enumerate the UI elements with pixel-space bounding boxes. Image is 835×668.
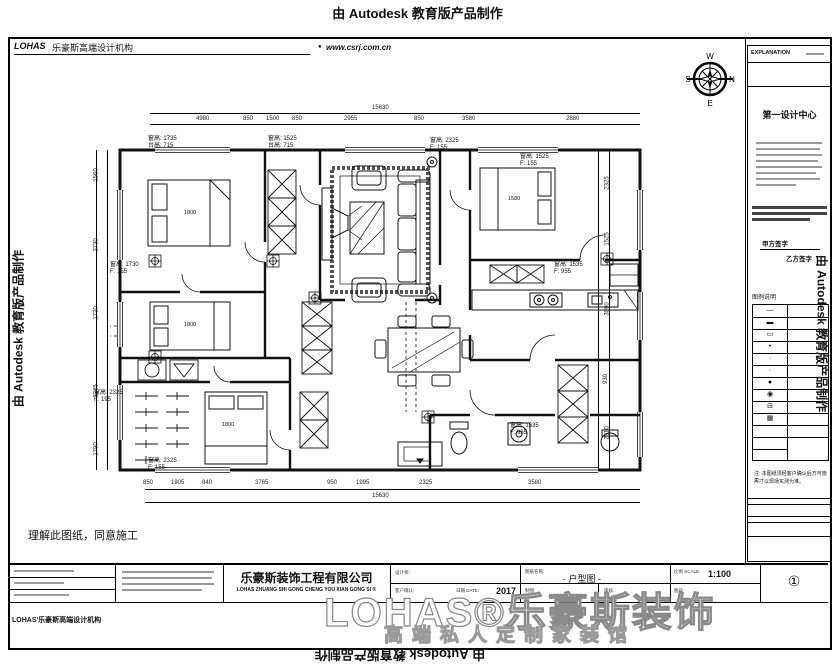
- compass-s: S: [685, 75, 690, 84]
- designer-label: 设计师:: [395, 570, 410, 576]
- panel-row-line: [748, 522, 831, 523]
- check-label: 审核:: [604, 588, 614, 594]
- closet-rails: [135, 392, 189, 464]
- bed-third: [205, 392, 267, 464]
- lohas-logo: LOHAS: [14, 41, 46, 51]
- window-label: 窗高: 1525 台高: 715: [268, 136, 297, 150]
- tb-smallprint: [122, 577, 212, 579]
- compass-w: W: [706, 52, 714, 61]
- sheet-number: ①: [760, 573, 828, 590]
- scale-value: 1:100: [708, 569, 731, 579]
- client-label: 客户确认:: [395, 588, 414, 594]
- paragraph-line: [756, 160, 818, 162]
- window-label: 窗高: 1535 F: 955: [510, 423, 539, 437]
- bold-statement-line: [752, 206, 827, 209]
- bathroom-ensuite: [138, 360, 198, 380]
- dim: 1790: [94, 442, 100, 455]
- floor-plan: [110, 130, 650, 495]
- dim-line-top-total: [150, 113, 640, 114]
- right-panel-divider: [745, 37, 746, 563]
- bed-size: 1580: [508, 196, 520, 202]
- paragraph-line: [756, 148, 820, 150]
- dim: 2880: [566, 116, 579, 122]
- panel-row-line: [748, 536, 831, 537]
- bottom-autodesk-banner: 由 Autodesk 教育版产品制作: [240, 646, 560, 665]
- window-label: 窗高: 2325 F: 155: [430, 138, 459, 152]
- legend-title: 图例说明: [752, 292, 776, 301]
- signature-label-a: 甲方签字: [762, 238, 788, 248]
- tb-subline: [390, 583, 520, 584]
- bed-size: 1800: [222, 422, 234, 428]
- north-compass: W N S E: [683, 50, 737, 108]
- dim: 3730: [94, 238, 100, 251]
- dim: 1560: [94, 168, 100, 181]
- tb-tiny-text: [14, 582, 64, 584]
- paragraph-line: [756, 172, 816, 174]
- tv-bench: [398, 442, 442, 466]
- living-room-set: [322, 157, 437, 303]
- paragraph-line: [756, 184, 796, 186]
- signature-line: [760, 249, 820, 250]
- wardrobes: [268, 170, 588, 448]
- bold-statement-line: [752, 218, 810, 221]
- dim: 850: [243, 116, 253, 122]
- paragraph-line: [756, 178, 820, 180]
- drawing-title: - 户型图 -: [563, 572, 601, 585]
- bottom-left-brand: LOHAS'乐豪斯高端设计机构: [12, 615, 101, 625]
- company-name: 乐豪斯装饰工程有限公司: [223, 569, 390, 586]
- explanation-title: EXPLANATION: [751, 50, 790, 56]
- tb-smallprint: [122, 571, 214, 573]
- date-value: 2017: [496, 586, 516, 596]
- header-underline: [14, 54, 310, 55]
- top-autodesk-banner: 由 Autodesk 教育版产品制作: [0, 3, 835, 22]
- date-label: 日期 DATE:: [456, 588, 479, 594]
- tb-subline: [8, 589, 115, 590]
- drawing-title-label: 图纸名称:: [525, 569, 544, 575]
- compass-e: E: [707, 99, 712, 108]
- dim: 1730: [94, 306, 100, 319]
- signature-label-b: 乙方签字: [786, 253, 812, 263]
- dining-set: [375, 316, 473, 386]
- bold-statement-line: [752, 212, 827, 215]
- bed-size: 1800: [184, 210, 196, 216]
- tb-subline: [670, 583, 760, 584]
- compass-n: N: [729, 75, 735, 84]
- tb-smallprint: [122, 589, 202, 591]
- legend-bottom-line: [753, 460, 828, 461]
- dim: 4980: [196, 116, 209, 122]
- dim: 850: [292, 116, 302, 122]
- tb-subline: [8, 577, 115, 578]
- panel-row-line: [748, 498, 831, 499]
- right-autodesk-banner: 由 Autodesk 教育版产品制作: [814, 254, 831, 414]
- dim: 850: [414, 116, 424, 122]
- tb-tiny-text: [14, 570, 74, 572]
- brand-name: 乐豪斯高端设计机构: [52, 41, 133, 54]
- window-label: 窗高: 2325 F: 155: [148, 458, 177, 472]
- tb-divider: [115, 565, 116, 602]
- legend-symbol-empty: [753, 437, 787, 450]
- dim-line-left-inner: [107, 150, 108, 470]
- left-autodesk-banner: 由 Autodesk 教育版产品制作: [10, 249, 27, 409]
- window-label: 窗高: 1730 F: 155: [110, 262, 139, 276]
- window-label: 窗高: 2325 F: 195: [94, 390, 123, 404]
- legend-row-line: [787, 425, 828, 426]
- bullet-icon: ●: [318, 44, 322, 50]
- door-arcs: [182, 185, 605, 450]
- window-label: 窗高: 1735 台高: 715: [148, 136, 177, 150]
- panel-divider: [748, 62, 831, 63]
- scale-label: 比例 SCALE:: [674, 569, 700, 575]
- window-label: 窗高: 1525 F: 155: [520, 154, 549, 168]
- dim-line-top-segs: [150, 124, 640, 125]
- dim: 1500: [266, 116, 279, 122]
- paragraph-line: [756, 142, 822, 144]
- dim-line-bottom-total: [145, 502, 640, 503]
- explanation-header-note: [806, 53, 824, 55]
- paragraph-line: [756, 154, 822, 156]
- dim-top-total: 15630: [372, 105, 389, 111]
- draw-label: 制图:: [525, 588, 535, 594]
- panel-note-line2: 尺寸以现场实测为准。: [754, 478, 804, 485]
- tb-smallprint: [122, 583, 214, 585]
- dim: 3580: [462, 116, 475, 122]
- paragraph-line: [756, 166, 822, 168]
- cad-sheet: { "banners": { "top": "由 Autodesk 教育版产品制…: [0, 0, 835, 668]
- panel-divider: [748, 86, 831, 87]
- sheet-label: 图号:: [674, 588, 684, 594]
- handwritten-note: 理解此图纸，同意施工: [28, 527, 138, 543]
- tb-subdivider: [598, 583, 599, 602]
- bed-size: 1800: [184, 322, 196, 328]
- dim: 2955: [344, 116, 357, 122]
- title-block: 乐豪斯装饰工程有限公司 LOHAS ZHUANG SHI GONG CHENG …: [8, 563, 828, 603]
- explanation-heading: 第一设计中心: [748, 108, 831, 121]
- legend-row-line: [787, 437, 828, 438]
- panel-row-line: [748, 504, 831, 505]
- company-pinyin: LOHAS ZHUANG SHI GONG CHENG YOU XIAN GON…: [223, 587, 390, 593]
- window-label: 窗高: 1535 F: 955: [554, 262, 583, 276]
- tb-tiny-text: [14, 594, 69, 596]
- website-url: www.csrj.com.cn: [326, 43, 391, 52]
- panel-row-line: [748, 516, 831, 517]
